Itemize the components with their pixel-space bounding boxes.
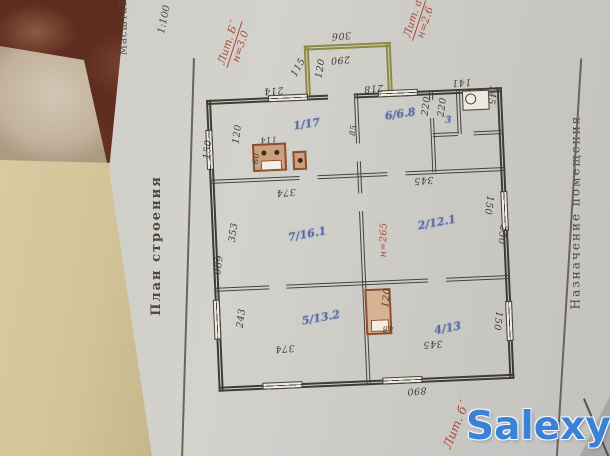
dimension-label: 243	[235, 308, 248, 329]
interior-wall	[359, 211, 366, 283]
burner-dot	[298, 158, 303, 163]
burner-dot	[261, 150, 266, 155]
room-label: 6/6.8	[384, 105, 416, 122]
plan-section-title: План строения	[149, 175, 164, 316]
oven-door	[261, 160, 282, 171]
dimension-label: 150	[202, 139, 215, 160]
scale-caption: Масштаб	[118, 0, 129, 55]
dimension-label: 85	[348, 124, 358, 136]
interior-wall	[433, 132, 458, 137]
interior-wall	[357, 175, 362, 193]
room-label: 4/13	[433, 319, 462, 337]
burner-dot	[274, 150, 279, 155]
boiler-symbol	[292, 151, 307, 171]
dimension-label: 345	[413, 174, 433, 187]
room-label: 2/12.1	[417, 213, 457, 233]
dimension-label: 150	[491, 311, 504, 332]
floor-plan-drawing: 1/17 6/6.8 3 7/16.1 2/12.1 5/13.2 4/13 н…	[206, 87, 514, 392]
salexy-watermark: Salexy	[466, 404, 610, 449]
dimension-label: 218	[363, 82, 383, 95]
dimension-label: 220	[420, 95, 433, 116]
dimension-label: 374	[276, 186, 296, 199]
interior-wall	[214, 285, 269, 291]
dimension-label: 120	[231, 124, 244, 145]
dimension-label: 214	[263, 84, 283, 97]
dimension-label: 120	[380, 287, 393, 308]
dimension-label: 690	[210, 255, 223, 276]
dimension-label: 48	[382, 324, 394, 334]
window-symbol	[378, 89, 418, 98]
interior-wall	[430, 118, 436, 172]
interior-wall	[286, 278, 428, 288]
room-label: 1/17	[292, 116, 321, 133]
dimension-label: 290	[330, 53, 350, 66]
dimension-label: 374	[275, 342, 295, 355]
dimension-label: 306	[331, 29, 351, 42]
dimension-label: 114	[259, 135, 276, 145]
dimension-label: 345	[422, 338, 442, 351]
window-symbol	[213, 300, 222, 340]
room-label: 7/16.1	[287, 224, 327, 244]
dimension-label: 141	[451, 76, 471, 89]
dimension-label: 353	[227, 222, 240, 243]
red-height-note: н=265	[378, 222, 390, 257]
interior-wall	[474, 130, 502, 135]
dimension-label: 150	[482, 195, 495, 216]
room-label: 5/13.2	[301, 308, 341, 328]
interior-wall	[317, 172, 387, 179]
interior-wall	[456, 89, 462, 134]
interior-wall	[446, 275, 510, 282]
photo-of-floor-plan-document: Масштаб 1:100 План строения Назначение п…	[0, 0, 610, 456]
dimension-label: 890	[406, 384, 426, 397]
interior-wall	[209, 176, 299, 184]
dimension-label: 60	[251, 152, 261, 164]
